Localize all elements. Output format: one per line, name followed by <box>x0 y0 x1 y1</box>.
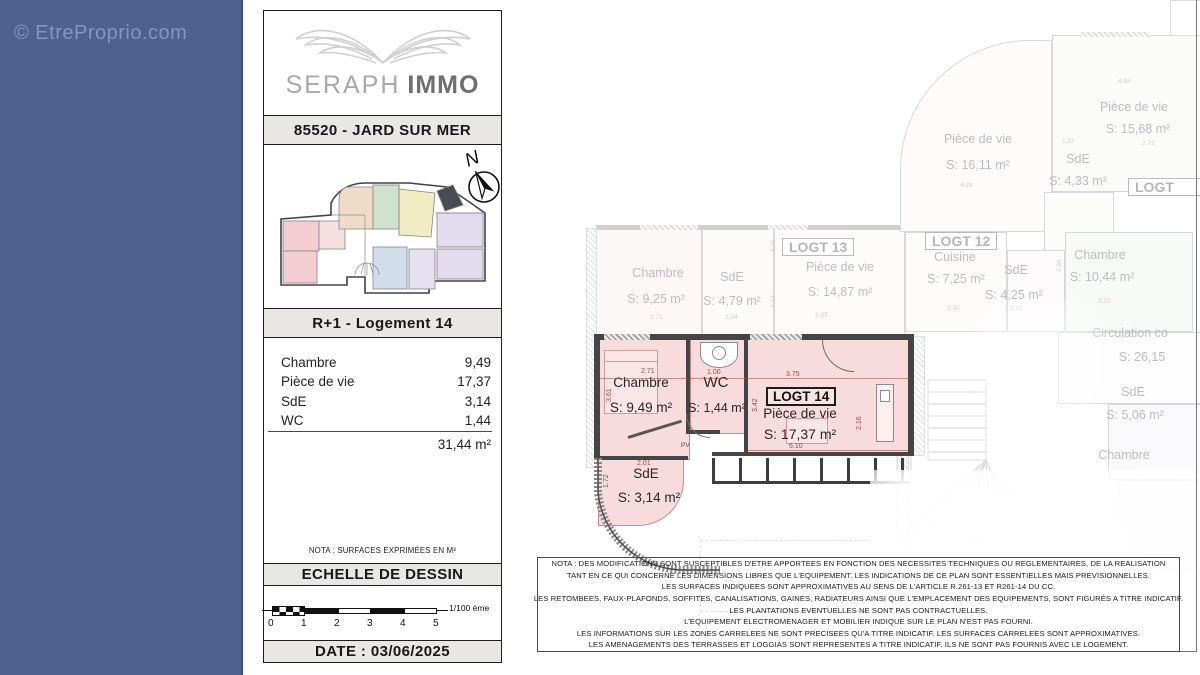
room-area: S: 3,14 m² <box>618 490 680 505</box>
logo-box: SERAPH IMMO <box>263 10 502 116</box>
surface-value: 17,37 <box>457 374 491 389</box>
scale-title-band: ECHELLE DE DESSIN <box>263 563 502 586</box>
dim-label: 2.73 <box>1142 140 1155 147</box>
surface-row: SdE 3,14 <box>281 394 491 409</box>
address-text: 85520 - JARD SUR MER <box>294 122 471 139</box>
svg-text:N: N <box>462 147 483 172</box>
pv-label: PV <box>681 442 690 449</box>
disclaimer-line: LES PLANTATIONS EVENTUELLES NE SONT PAS … <box>729 605 987 617</box>
balcony-railing <box>712 458 910 484</box>
dim-label: 2.16 <box>856 416 863 430</box>
wall <box>712 452 914 456</box>
room-area: S: 4,25 m² <box>985 288 1043 302</box>
room-area: S: 15,68 m² <box>1106 122 1171 136</box>
room-area: S: 17,37 m² <box>764 426 836 442</box>
room-area: S: 7,25 m² <box>927 272 985 286</box>
bed-pillow <box>604 350 658 362</box>
surface-total: 31,44 m² <box>281 437 491 452</box>
surface-value: 9,49 <box>465 355 491 370</box>
dim-label: 3.75 <box>786 371 800 378</box>
disclaimer-line: LES AMENAGEMENTS DES TERRASSES ET LOGGIA… <box>589 639 1129 651</box>
window <box>604 334 650 340</box>
scale-checker-segment <box>272 606 305 616</box>
scale-tick-3: 3 <box>367 618 373 629</box>
room-name: Cuisine <box>934 250 976 264</box>
unit-id-box: LOGT <box>1128 178 1200 196</box>
unit-title-band: R+1 - Logement 14 <box>263 308 502 338</box>
washbasin-bowl <box>712 346 726 360</box>
room-name: SdE <box>1066 152 1090 166</box>
wall <box>908 334 914 456</box>
disclaimer-line: LES SURFACES INDIQUEES SONT APPROXIMATIV… <box>662 581 1056 593</box>
dim-label: 4.68 <box>1118 78 1131 85</box>
unit-title-text: R+1 - Logement 14 <box>312 315 453 332</box>
surface-value: 1,44 <box>465 413 491 428</box>
address-band: 85520 - JARD SUR MER <box>263 115 502 145</box>
room-name: Pièce de vie <box>1100 100 1168 114</box>
scale-segment <box>305 608 338 614</box>
room-name: SdE <box>1004 263 1028 277</box>
window <box>768 225 808 230</box>
wall <box>594 334 600 460</box>
room-name: Chambre <box>1074 248 1125 262</box>
room-area: S: 4,33 m² <box>1049 174 1107 188</box>
left-blue-band <box>0 0 243 675</box>
disclaimer-line: LES RETOMBEES, FAUX-PLAFONDS, SOFFITES, … <box>534 593 1183 605</box>
scale-tick-5: 5 <box>433 618 439 629</box>
dim-label: 4.28 <box>960 182 973 189</box>
screenshot-stage: © EtreProprio.com SERAPH IMMO 85520 - JA… <box>0 0 1200 675</box>
room-area: S: 5,06 m² <box>1106 408 1164 422</box>
unit-id-box: LOGT 12 <box>925 232 997 250</box>
dim-label: 3.42 <box>752 398 759 412</box>
table-divider <box>268 431 492 432</box>
dim-line <box>748 450 908 451</box>
dim-label: 2.37 <box>947 305 960 312</box>
date-band: DATE : 03/06/2025 <box>263 640 502 663</box>
dim-label: 3.61 <box>606 388 613 402</box>
dim-label: 1.87 <box>1062 138 1075 145</box>
kitchen-sink <box>880 390 890 402</box>
dim-label: 1.72 <box>603 474 610 488</box>
room-name: Chambre <box>632 266 683 280</box>
window <box>1080 32 1150 37</box>
room-area: S: 4,79 m² <box>703 294 761 308</box>
surface-row: Pièce de vie 17,37 <box>281 374 491 389</box>
room-name: SdE <box>720 270 744 284</box>
room-name: SdE <box>1121 385 1145 399</box>
surface-value: 3,14 <box>465 394 491 409</box>
room-name: Pièce de vie <box>763 406 837 421</box>
room-area: S: 14,87 m² <box>808 285 873 299</box>
room-name: Circulation co <box>1092 326 1168 340</box>
dim-label: 2.71 <box>641 368 655 375</box>
dim-label: 6.10 <box>789 443 803 450</box>
surface-label: WC <box>281 413 304 428</box>
room-area: S: 26,15 <box>1119 350 1166 364</box>
dim-label: 3.37 <box>1098 298 1111 305</box>
unit-id-box: LOGT 14 <box>766 387 836 406</box>
dim-label: 2.04 <box>725 314 738 321</box>
room-area: S: 9,25 m² <box>627 292 685 306</box>
dim-label: 1.01 <box>770 239 777 252</box>
room-name: Chambre <box>1098 448 1149 462</box>
surface-row: Chambre 9,49 <box>281 355 491 370</box>
disclaimer-line: TANT EN CE QUI CONCERNE LES DIMENSIONS L… <box>567 570 1150 582</box>
scale-title-text: ECHELLE DE DESSIN <box>302 566 464 583</box>
dim-label: 3.97 <box>815 312 828 319</box>
unit-id-box: LOGT 13 <box>782 238 854 256</box>
room-name: WC <box>704 374 729 391</box>
scale-segment <box>404 608 437 614</box>
disclaimer-line: L'EQUIPEMENT ELECTROMENAGER ET MOBILIER … <box>684 616 1033 628</box>
scale-segment <box>338 608 371 614</box>
surface-label: Chambre <box>281 355 337 370</box>
brand-immo: IMMO <box>407 71 479 100</box>
dim-label: 1.41 <box>1010 305 1023 312</box>
room-name: Pièce de vie <box>806 260 874 274</box>
dim-label: 2.71 <box>650 314 663 321</box>
surface-row: WC 1,44 <box>281 413 491 428</box>
hatched-wall <box>913 336 925 456</box>
sheet-right-border <box>1196 0 1197 652</box>
scale-tick-1: 1 <box>301 618 307 629</box>
surface-label: SdE <box>281 394 307 409</box>
dim-label: 2.01 <box>637 460 651 467</box>
room-area: S: 1,44 m² <box>688 401 746 415</box>
scale-ratio-label: 1/100 ème <box>449 603 489 613</box>
window <box>640 225 698 230</box>
scale-segment <box>371 608 404 614</box>
dim-label: 3.42 <box>770 295 777 308</box>
window <box>750 334 802 340</box>
room <box>596 228 702 337</box>
room-area: S: 9,49 m² <box>610 400 672 415</box>
dim-label: 1.00 <box>707 369 721 376</box>
disclaimer-line: NOTA : DES MODIFICATIONS SONT SUSCEPTIBL… <box>552 558 1166 570</box>
overview-box: N <box>263 144 502 309</box>
date-text: DATE : 03/06/2025 <box>315 643 450 660</box>
brand-seraph: SERAPH <box>286 71 401 100</box>
north-compass-icon: N <box>454 147 506 209</box>
site-watermark: © EtreProprio.com <box>14 22 187 45</box>
surfaces-nota: NOTA : SURFACES EXPRIMÉES EN M² <box>265 546 500 555</box>
dim-label: 2.86 <box>1056 259 1063 272</box>
brand-name: SERAPH IMMO <box>264 71 501 100</box>
disclaimer-box: NOTA : DES MODIFICATIONS SONT SUSCEPTIBL… <box>537 557 1180 652</box>
room-name: Pièce de vie <box>944 132 1012 146</box>
room-area: S: 16,11 m² <box>946 158 1010 172</box>
scale-tick-4: 4 <box>400 618 406 629</box>
room-name: SdE <box>633 466 659 481</box>
room-area: S: 10,44 m² <box>1070 270 1135 284</box>
dim-line <box>600 378 910 379</box>
partition-wall <box>744 338 748 456</box>
disclaimer-line: LES INFORMATIONS SUR LES ZONES CARRELEES… <box>577 628 1140 640</box>
surface-label: Pièce de vie <box>281 374 355 389</box>
scale-tick-2: 2 <box>334 618 340 629</box>
scale-tick-0: 0 <box>268 618 274 629</box>
